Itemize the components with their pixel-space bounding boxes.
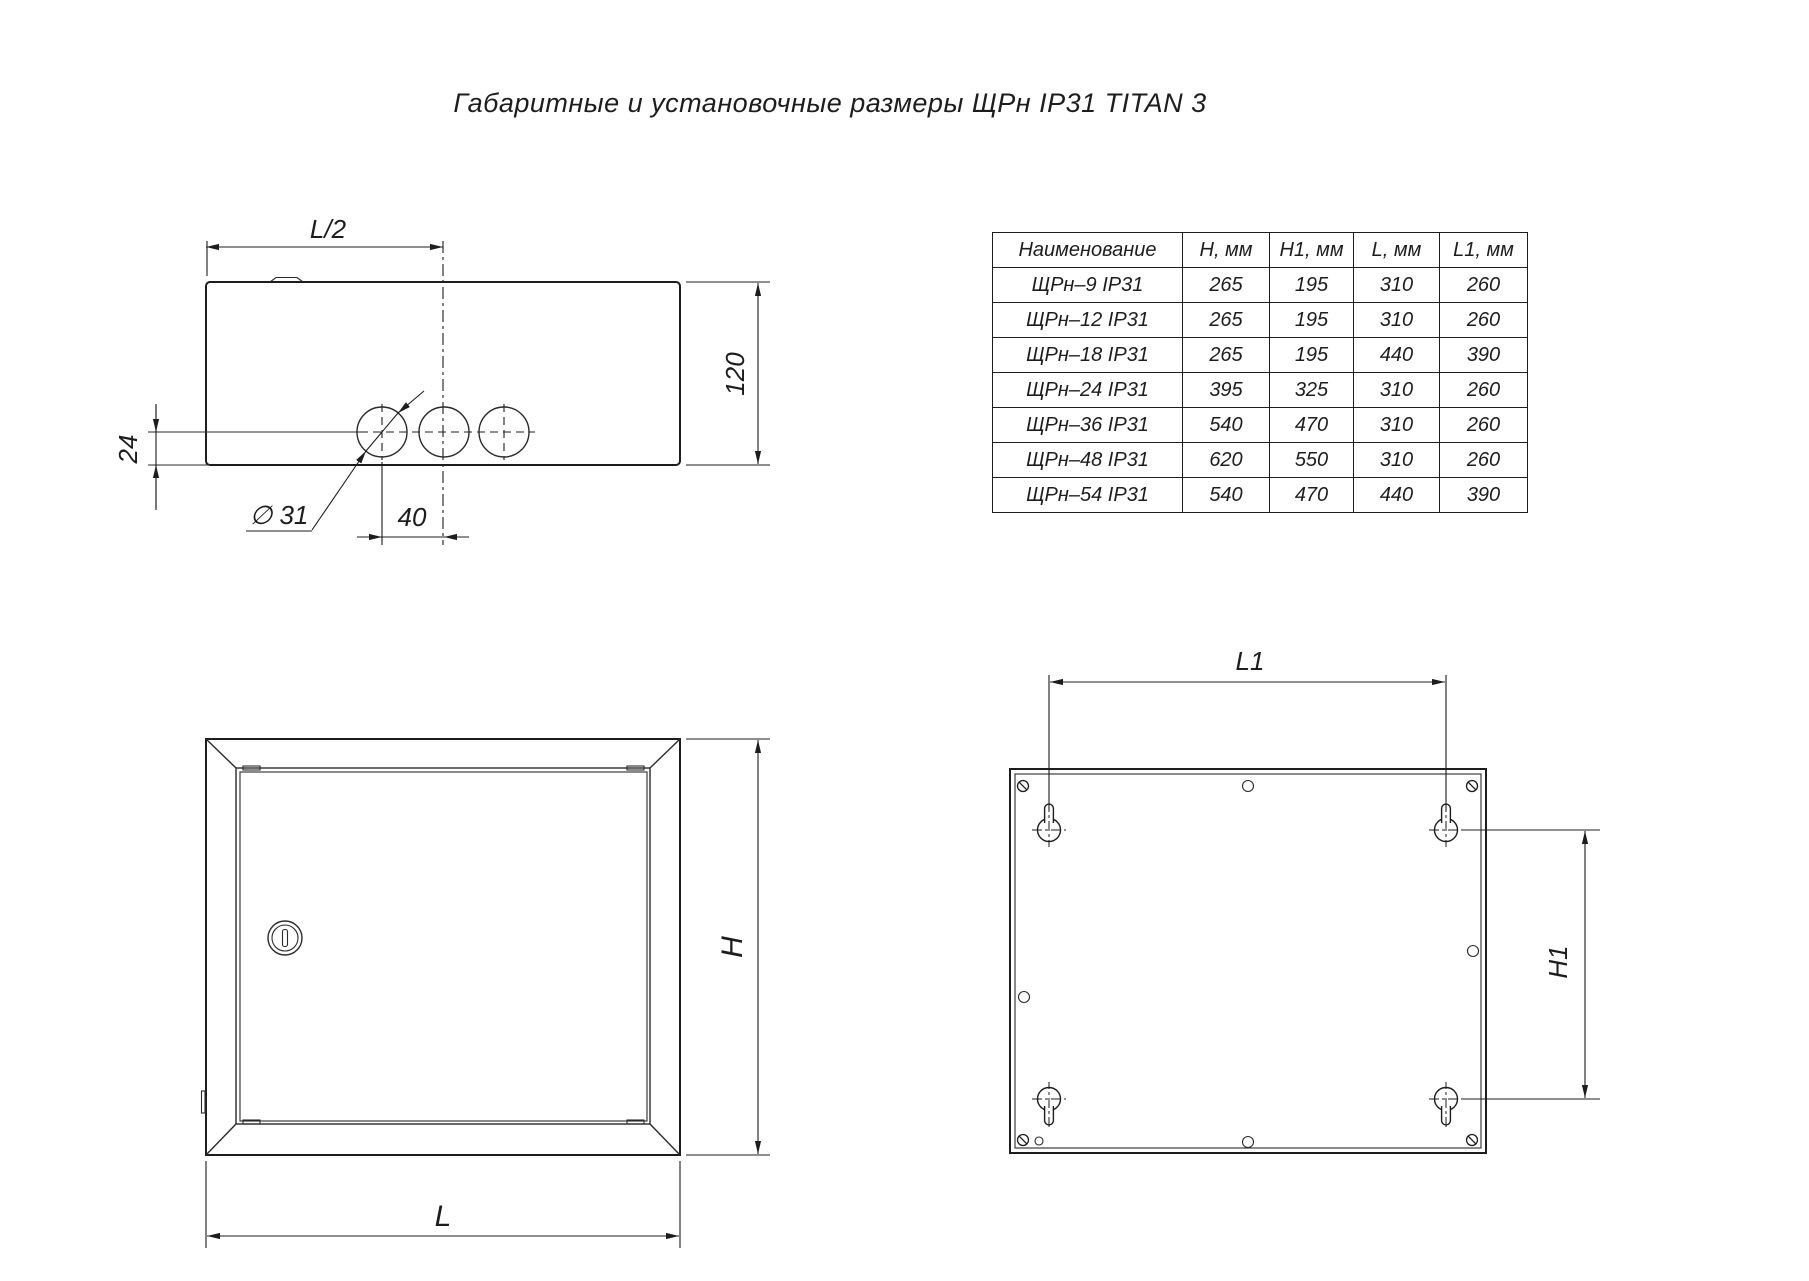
dim-label-mount-width: L1 — [1236, 646, 1265, 676]
table-cell: 260 — [1440, 373, 1528, 408]
screw-icon — [1018, 781, 1029, 792]
front-frame-outer — [206, 739, 680, 1155]
table-cell: 260 — [1440, 303, 1528, 338]
table-cell: ЩРн–24 IP31 — [993, 373, 1183, 408]
table-header-cell: L, мм — [1354, 233, 1440, 268]
dim-label-mount-height: H1 — [1543, 945, 1573, 978]
back-panel-inner — [1015, 774, 1481, 1148]
table-cell: 440 — [1354, 478, 1440, 513]
dim-depth: 120 — [686, 282, 770, 465]
table-cell: 265 — [1183, 268, 1270, 303]
panel-hole — [1243, 1137, 1254, 1148]
table-cell: 265 — [1183, 303, 1270, 338]
table-cell: 540 — [1183, 408, 1270, 443]
table-row: ЩРн–18 IP31 265 195 440 390 — [993, 338, 1528, 373]
dim-label-height: H — [716, 936, 749, 958]
table-cell: 540 — [1183, 478, 1270, 513]
table-cell: 195 — [1270, 303, 1354, 338]
drawing-canvas: L/2 120 24 ∅ 31 — [0, 0, 1809, 1281]
table-cell: 470 — [1270, 408, 1354, 443]
table-cell: ЩРн–54 IP31 — [993, 478, 1183, 513]
table-header-cell: H1, мм — [1270, 233, 1354, 268]
table-cell: ЩРн–18 IP31 — [993, 338, 1183, 373]
table-cell: 265 — [1183, 338, 1270, 373]
screw-icon — [1018, 1135, 1029, 1146]
dim-label-hole-diameter: ∅ 31 — [250, 500, 309, 530]
table-cell: 195 — [1270, 338, 1354, 373]
keyhole-slot — [1032, 1082, 1066, 1127]
table-cell: 620 — [1183, 443, 1270, 478]
panel-hole — [1468, 946, 1479, 957]
panel-hole — [1243, 781, 1254, 792]
table-row: ЩРн–48 IP31 620 550 310 260 — [993, 443, 1528, 478]
table-cell: 440 — [1354, 338, 1440, 373]
dimension-table: Наименование H, мм H1, мм L, мм L1, мм Щ… — [992, 232, 1528, 513]
dim-hole-offset: 24 — [113, 404, 156, 510]
dim-mount-height: H1 — [1462, 830, 1600, 1099]
table-row: ЩРн–24 IP31 395 325 310 260 — [993, 373, 1528, 408]
side-hinge-tab — [202, 1091, 206, 1113]
table-row: ЩРн–9 IP31 265 195 310 260 — [993, 268, 1528, 303]
screw-icon — [1467, 781, 1478, 792]
panel-hole — [1035, 1137, 1043, 1145]
table-header-cell: Наименование — [993, 233, 1183, 268]
table-cell: 390 — [1440, 338, 1528, 373]
drawing-sheet: Габаритные и установочные размеры ЩРн IP… — [0, 0, 1809, 1281]
table-cell: 395 — [1183, 373, 1270, 408]
dim-height: H — [686, 739, 770, 1155]
keyhole-slot — [1429, 1082, 1463, 1127]
table-row: ЩРн–36 IP31 540 470 310 260 — [993, 408, 1528, 443]
table-cell: ЩРн–9 IP31 — [993, 268, 1183, 303]
table-cell: 260 — [1440, 408, 1528, 443]
dim-label-half-width: L/2 — [310, 214, 347, 244]
front-view-drawing: H L — [202, 739, 771, 1248]
top-view-drawing: L/2 120 24 ∅ 31 — [113, 214, 770, 545]
front-door-panel — [240, 772, 647, 1121]
dim-width: L — [206, 1161, 680, 1248]
table-row: ЩРн–12 IP31 265 195 310 260 — [993, 303, 1528, 338]
table-header-row: Наименование H, мм H1, мм L, мм L1, мм — [993, 233, 1528, 268]
back-view-drawing: L1 H1 — [1010, 646, 1600, 1153]
table-cell: 470 — [1270, 478, 1354, 513]
table-header-cell: H, мм — [1183, 233, 1270, 268]
table-cell: 325 — [1270, 373, 1354, 408]
table-cell: 310 — [1354, 408, 1440, 443]
table-cell: 310 — [1354, 303, 1440, 338]
screw-icon — [1467, 1135, 1478, 1146]
table-header-cell: L1, мм — [1440, 233, 1528, 268]
table-cell: 310 — [1354, 268, 1440, 303]
front-frame-opening — [236, 768, 650, 1124]
table-cell: ЩРн–36 IP31 — [993, 408, 1183, 443]
dim-mount-width: L1 — [1049, 646, 1446, 810]
table-cell: 310 — [1354, 373, 1440, 408]
table-cell: ЩРн–12 IP31 — [993, 303, 1183, 338]
panel-hole — [1019, 992, 1030, 1003]
door-lock — [268, 921, 302, 955]
dim-label-hole-spacing: 40 — [398, 502, 427, 532]
table-cell: 195 — [1270, 268, 1354, 303]
table-cell: 260 — [1440, 268, 1528, 303]
dim-half-width: L/2 — [206, 214, 443, 276]
table-cell: 550 — [1270, 443, 1354, 478]
back-panel-outer — [1010, 769, 1486, 1153]
dim-hole-spacing: 40 — [357, 462, 469, 545]
table-cell: 260 — [1440, 443, 1528, 478]
dim-label-width: L — [435, 1200, 452, 1233]
dim-label-depth: 120 — [720, 352, 750, 396]
dim-label-hole-offset: 24 — [113, 435, 143, 465]
table-cell: 310 — [1354, 443, 1440, 478]
table-cell: ЩРн–48 IP31 — [993, 443, 1183, 478]
table-row: ЩРн–54 IP31 540 470 440 390 — [993, 478, 1528, 513]
table-cell: 390 — [1440, 478, 1528, 513]
